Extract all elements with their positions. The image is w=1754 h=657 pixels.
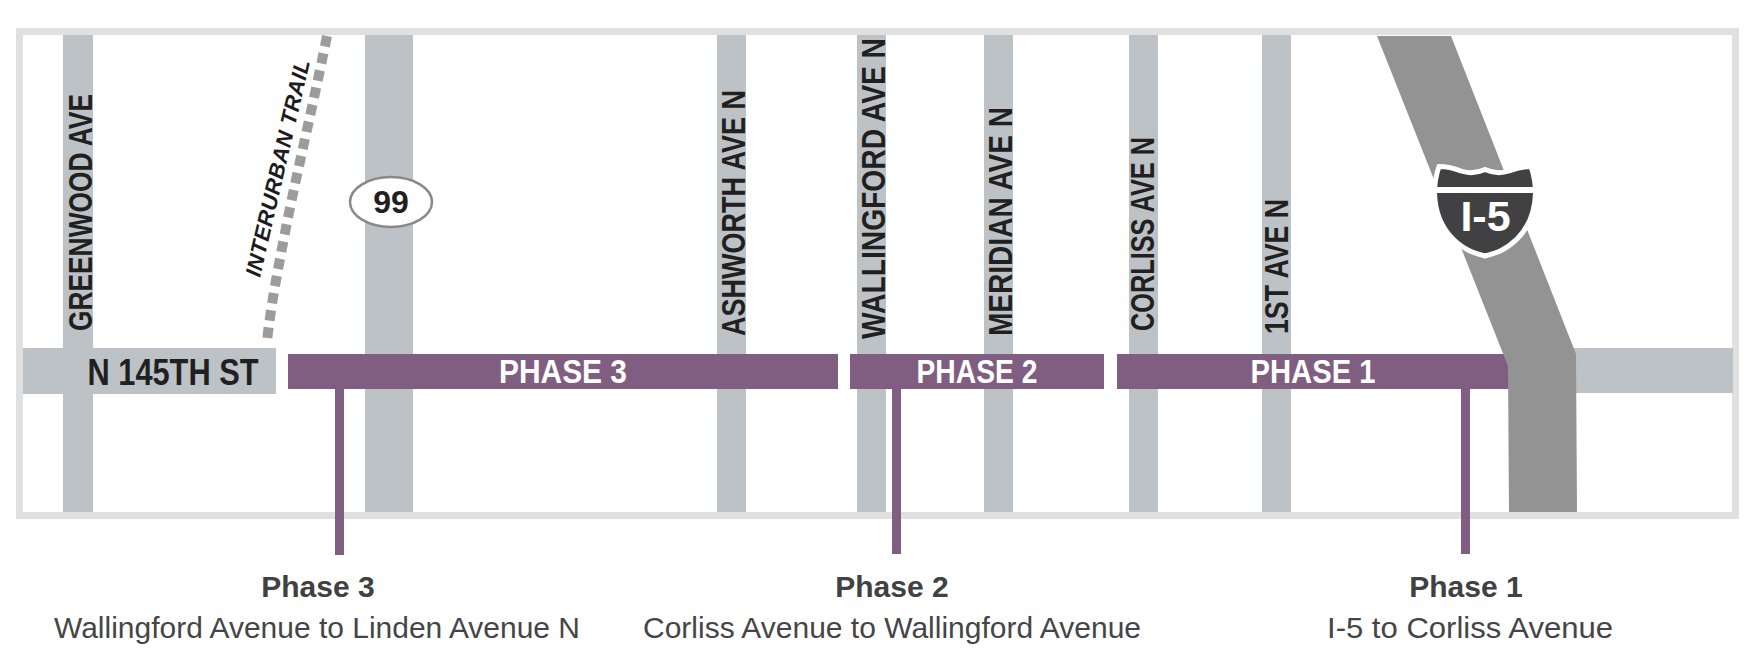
svg-text:Phase 2: Phase 2: [835, 570, 948, 603]
svg-text:MERIDIAN AVE N: MERIDIAN AVE N: [981, 107, 1019, 336]
svg-text:PHASE 1: PHASE 1: [1251, 353, 1376, 390]
svg-text:Phase 3: Phase 3: [261, 570, 374, 603]
svg-text:I-5: I-5: [1460, 192, 1510, 240]
svg-text:N 145TH ST: N 145TH ST: [88, 352, 259, 393]
svg-text:I-5 to Corliss Avenue: I-5 to Corliss Avenue: [1327, 612, 1613, 644]
svg-text:CORLISS AVE N: CORLISS AVE N: [1123, 137, 1161, 331]
svg-text:ASHWORTH AVE N: ASHWORTH AVE N: [714, 90, 752, 336]
svg-text:PHASE 3: PHASE 3: [499, 353, 627, 390]
svg-text:PHASE 2: PHASE 2: [917, 353, 1038, 390]
svg-text:Wallingford Avenue to Linden A: Wallingford Avenue to Linden Avenue N: [54, 612, 580, 644]
svg-text:99: 99: [373, 184, 409, 220]
svg-text:Corliss Avenue to Wallingford: Corliss Avenue to Wallingford Avenue: [643, 612, 1141, 644]
svg-text:GREENWOOD AVE: GREENWOOD AVE: [61, 94, 99, 331]
svg-text:Phase 1: Phase 1: [1409, 570, 1522, 603]
svg-text:1ST AVE N: 1ST AVE N: [1257, 199, 1295, 334]
svg-text:WALLINGFORD AVE N: WALLINGFORD AVE N: [854, 38, 892, 339]
